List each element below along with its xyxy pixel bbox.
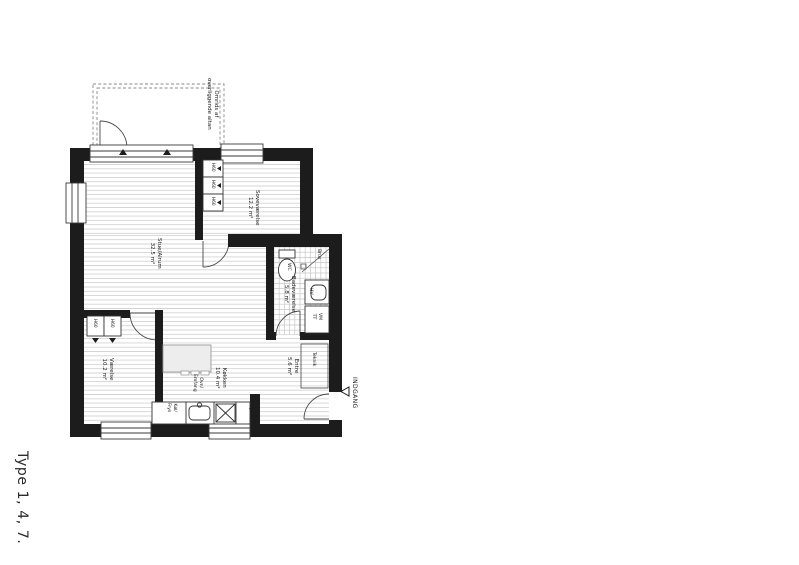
shower-label: Brus: [315, 249, 321, 259]
balcony-outline-label: Omrids af overliggende altan: [205, 78, 219, 130]
toilet-label: WC: [285, 263, 291, 271]
balcony-door-window: [90, 145, 193, 162]
oven-hood-label: Ovn/ Emfang: [191, 374, 203, 392]
room-label-koekken: Køkken 10.4 m²: [213, 367, 227, 389]
washer-dryer-label: VM TT: [310, 313, 322, 320]
entrance-label: INDGANG: [350, 377, 358, 409]
fridge-freezer-label: Køl/ Frys: [165, 403, 177, 412]
entrance-door: [304, 394, 329, 419]
floor-plan-drawing: [0, 0, 799, 565]
floor-plan-page: Omrids af overliggende altan Stue/Alrum …: [0, 0, 799, 565]
closet-label-4: H60: [93, 319, 98, 327]
closet-label-5: H60: [110, 319, 115, 327]
room-label-stue: Stue/Alrum 32.5 m²: [148, 238, 162, 269]
room-window: [101, 422, 151, 439]
drawing-title: Type 1, 4, 7.: [13, 451, 31, 544]
kitchen-island: [163, 345, 211, 375]
kitchen-window: [209, 422, 250, 439]
dishwasher-label: Opv: [247, 404, 253, 413]
balcony-door: [100, 121, 127, 148]
room-label-vaerelse: Værelse 10.2 m²: [100, 358, 114, 380]
closet-label-1: H60: [211, 163, 216, 171]
hand-basin-label: HV: [307, 288, 313, 295]
closet-label-3: H60: [211, 197, 216, 205]
bedroom-door: [203, 241, 229, 267]
room-label-badevaerelse: Badeværelse 5.8 m²: [282, 276, 296, 312]
left-window: [66, 183, 86, 223]
closet-label-2: H60: [211, 180, 216, 188]
room-label-entre: Entre 5.6 m²: [285, 357, 299, 375]
room-label-sovevaerelse: Soveværelse 12.2 m²: [246, 190, 260, 225]
entrance-arrow-icon: [341, 387, 349, 396]
room-label-teknik: Teknik: [310, 352, 316, 366]
bedroom-window: [221, 144, 263, 163]
